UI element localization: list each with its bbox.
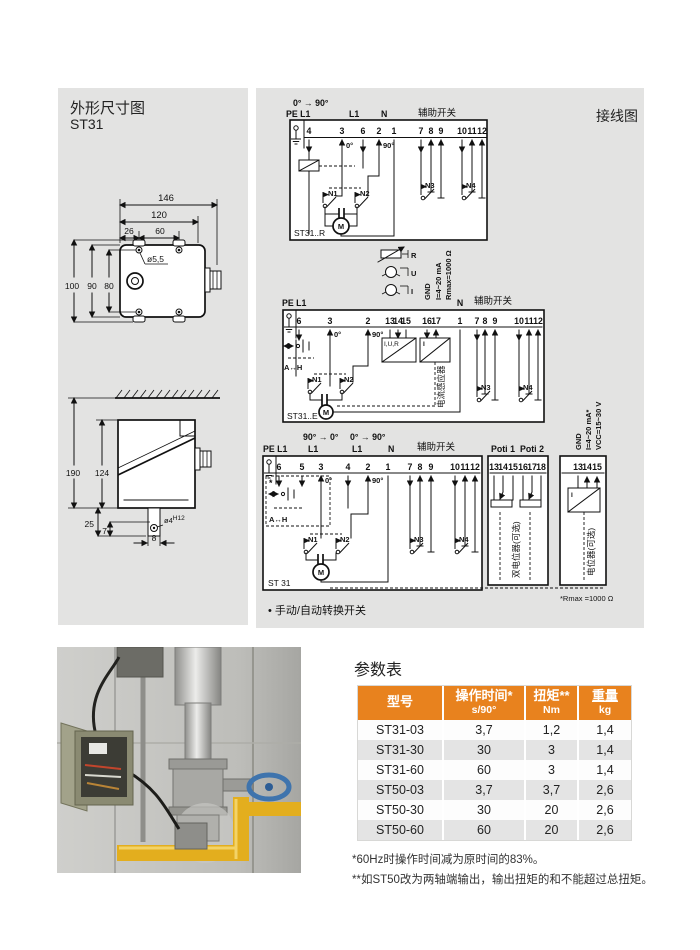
terminal-number: 10 bbox=[457, 126, 467, 136]
dim-shaft-hole: ø4H12 bbox=[164, 515, 185, 525]
terminal-number: 2 bbox=[366, 316, 371, 326]
angle-left-label: 90° → 0° bbox=[303, 432, 339, 442]
footnote-1: *60Hz时操作时间减为原时间的83%。 bbox=[352, 851, 544, 867]
cell-torque: 3 bbox=[524, 760, 577, 780]
dim-190: 190 bbox=[66, 468, 80, 478]
cell-model: ST50-60 bbox=[358, 820, 442, 840]
terminal-number: 1 bbox=[458, 316, 463, 326]
diagram-label: ST 31 bbox=[268, 578, 291, 588]
terminal-number: 18 bbox=[536, 462, 546, 472]
pe-l1-label: PE L1 bbox=[286, 109, 311, 119]
rmax-note: *Rmax =1000 Ω bbox=[560, 594, 614, 603]
table-row: ST50-033,73,72,6 bbox=[358, 780, 631, 800]
heat-shield bbox=[175, 647, 221, 705]
terminal-number: 9 bbox=[429, 462, 434, 472]
l1-label: L1 bbox=[352, 444, 362, 454]
manual-auto-label: A↔H bbox=[284, 363, 302, 372]
deg0-label: 0° bbox=[346, 141, 353, 150]
n-label: N bbox=[381, 109, 387, 119]
dual-poti-label: 双电位器(可选) bbox=[511, 521, 521, 578]
current-range-label: I=4~20 mA bbox=[434, 262, 443, 300]
cell-weight: 2,6 bbox=[577, 780, 631, 800]
diagram-label: ST31..R bbox=[294, 228, 325, 238]
terminal-number: 6 bbox=[277, 462, 282, 472]
ceiling-hatch bbox=[116, 390, 218, 398]
regulator bbox=[175, 823, 207, 849]
dim-80: 80 bbox=[104, 281, 114, 291]
cell-model: ST50-03 bbox=[358, 780, 442, 800]
terminal-number: 8 bbox=[418, 462, 423, 472]
r-option-label: R bbox=[411, 251, 417, 260]
poti-option-label: 电位器(可选) bbox=[586, 528, 596, 576]
motor-label: M bbox=[318, 568, 324, 577]
terminal-number: 2 bbox=[366, 462, 371, 472]
terminal-number: 17 bbox=[431, 316, 441, 326]
terminal-number: 7 bbox=[408, 462, 413, 472]
cell-weight: 1,4 bbox=[577, 760, 631, 780]
current-range-label: I=4~20 mA* bbox=[584, 409, 593, 450]
manual-auto-label: A↔H bbox=[269, 515, 287, 524]
terminal-number: 15 bbox=[508, 462, 518, 472]
i-option-label: I bbox=[411, 287, 413, 296]
deg90-label: 90° bbox=[383, 141, 394, 150]
current-output-box bbox=[560, 456, 606, 585]
angle-label: 0° → 90° bbox=[293, 98, 329, 108]
n1-label: N1 bbox=[308, 535, 318, 544]
col-model: 型号 bbox=[358, 686, 442, 720]
l1-label: L1 bbox=[308, 444, 318, 454]
poti2-label: Poti 2 bbox=[520, 444, 544, 454]
n3-label: N3 bbox=[425, 181, 435, 190]
dim-60: 60 bbox=[155, 226, 165, 236]
cell-time: 30 bbox=[442, 800, 524, 820]
terminal-number: 8 bbox=[483, 316, 488, 326]
terminal-number: 10 bbox=[450, 462, 460, 472]
table-row: ST50-3030202,6 bbox=[358, 800, 631, 820]
motor-label: M bbox=[338, 222, 344, 231]
dim-25: 25 bbox=[85, 519, 95, 529]
table-title: 参数表 bbox=[354, 656, 402, 680]
vertical-pipe bbox=[185, 703, 211, 761]
terminal-number: 3 bbox=[319, 462, 324, 472]
dim-8: 8 bbox=[152, 533, 157, 543]
gnd-label: GND bbox=[423, 283, 432, 300]
terminal-number: 3 bbox=[328, 316, 333, 326]
n1-label: N1 bbox=[328, 189, 338, 198]
terminal-number: 1 bbox=[392, 126, 397, 136]
aux-switch-label: 辅助开关 bbox=[417, 441, 456, 453]
terminal-number: 9 bbox=[493, 316, 498, 326]
n4-label: N4 bbox=[459, 535, 469, 544]
terminal-number: 7 bbox=[475, 316, 480, 326]
datasheet-page: 外形尺寸图 ST31 接线图 146 120 26 60 bbox=[0, 0, 700, 950]
cell-torque: 3,7 bbox=[524, 780, 577, 800]
n-label: N bbox=[457, 298, 463, 308]
dimension-drawing-side: 190 124 ø4H12 25 7 8 bbox=[60, 383, 248, 563]
terminal-number: 10 bbox=[514, 316, 524, 326]
terminal-number: 11 bbox=[460, 462, 469, 472]
installation-photo bbox=[57, 647, 301, 873]
table-row: ST31-606031,4 bbox=[358, 760, 631, 780]
current-converter-label: I bbox=[423, 341, 425, 348]
terminal-number: 6 bbox=[361, 126, 366, 136]
terminal-number: 5 bbox=[300, 462, 305, 472]
n2-label: N2 bbox=[344, 375, 354, 384]
dimension-section-title: 外形尺寸图 bbox=[70, 97, 145, 118]
cell-torque: 1,2 bbox=[524, 720, 577, 740]
terminal-number: 12 bbox=[533, 316, 543, 326]
dim-26: 26 bbox=[124, 226, 134, 236]
cell-model: ST50-30 bbox=[358, 800, 442, 820]
current-source-icon bbox=[386, 285, 397, 296]
gnd-label: GND bbox=[574, 433, 583, 450]
cell-time: 30 bbox=[442, 740, 524, 760]
n2-label: N2 bbox=[340, 535, 350, 544]
wiring-diagram-st31r: 0° → 90° PE L1 L1 N 辅助开关 4 3 6 2 1 7 8 9… bbox=[283, 96, 495, 246]
terminal-number: 12 bbox=[470, 462, 480, 472]
wiring-diagram-st31: GND I=4~20 mA* VCC=15~30 V 90° → 0° 0° →… bbox=[260, 388, 622, 630]
terminal-number: 14 bbox=[498, 462, 508, 472]
terminal-number: 2 bbox=[377, 126, 382, 136]
dim-90: 90 bbox=[87, 281, 97, 291]
cell-weight: 1,4 bbox=[577, 720, 631, 740]
cell-time: 3,7 bbox=[442, 720, 524, 740]
manual-auto-note: • 手动/自动转换开关 bbox=[268, 603, 366, 617]
cell-time: 3,7 bbox=[442, 780, 524, 800]
cell-time: 60 bbox=[442, 820, 524, 840]
cell-weight: 1,4 bbox=[577, 740, 631, 760]
dim-hole: ø5,5 bbox=[147, 254, 164, 264]
pe-l1-label: PE L1 bbox=[282, 298, 307, 308]
poti1-label: Poti 1 bbox=[491, 444, 515, 454]
terminal-number: 12 bbox=[477, 126, 487, 136]
cell-model: ST31-30 bbox=[358, 740, 442, 760]
l1-label: L1 bbox=[349, 109, 359, 119]
terminal-number: 1 bbox=[386, 462, 391, 472]
angle-right-label: 0° → 90° bbox=[350, 432, 386, 442]
col-weight: 重量kg bbox=[577, 686, 631, 720]
rmax-label: Rmax=1000 Ω bbox=[444, 250, 453, 300]
wiring-section-title: 接线图 bbox=[596, 106, 638, 126]
voltage-source-icon bbox=[386, 267, 397, 278]
aux-switch-label: 辅助开关 bbox=[418, 107, 457, 119]
terminal-number: 7 bbox=[419, 126, 424, 136]
cell-torque: 3 bbox=[524, 740, 577, 760]
parameter-table: 型号 操作时间*s/90° 扭矩**Nm 重量kg ST31-033,71,21… bbox=[358, 686, 631, 840]
u-option-label: U bbox=[411, 269, 416, 278]
terminal-number: 15 bbox=[592, 462, 602, 472]
valve-body bbox=[173, 769, 223, 807]
cell-model: ST31-60 bbox=[358, 760, 442, 780]
dim-146: 146 bbox=[158, 193, 174, 204]
cell-weight: 2,6 bbox=[577, 800, 631, 820]
potentiometer-icon bbox=[520, 500, 541, 507]
table-row: ST31-033,71,21,4 bbox=[358, 720, 631, 740]
terminal-number: 8 bbox=[429, 126, 434, 136]
dim-120: 120 bbox=[151, 210, 167, 221]
dim-124: 124 bbox=[95, 468, 109, 478]
terminal-number: 9 bbox=[439, 126, 444, 136]
n3-label: N3 bbox=[414, 535, 424, 544]
aux-switch-label: 辅助开关 bbox=[474, 295, 513, 307]
deg90-label: 90° bbox=[372, 476, 383, 485]
terminal-number: 4 bbox=[346, 462, 351, 472]
cell-torque: 20 bbox=[524, 820, 577, 840]
terminal-number: 15 bbox=[401, 316, 411, 326]
cell-time: 60 bbox=[442, 760, 524, 780]
iur-label: I,U,R bbox=[384, 341, 399, 348]
current-converter-label: I bbox=[571, 492, 573, 499]
asterisk: * bbox=[269, 478, 273, 488]
flange bbox=[169, 759, 227, 769]
table-header-row: 型号 操作时间*s/90° 扭矩**Nm 重量kg bbox=[358, 686, 631, 720]
dim-7: 7 bbox=[102, 526, 107, 536]
junction-box bbox=[117, 647, 163, 677]
terminal-number: 11 bbox=[467, 126, 476, 136]
table-row: ST50-6060202,6 bbox=[358, 820, 631, 840]
terminal-number: 3 bbox=[340, 126, 345, 136]
terminal-number: 4 bbox=[307, 126, 312, 136]
n4-label: N4 bbox=[466, 181, 476, 190]
cable-gland bbox=[205, 268, 210, 292]
vcc-label: VCC=15~30 V bbox=[594, 402, 603, 450]
col-torque: 扭矩**Nm bbox=[524, 686, 577, 720]
terminal-number: 6 bbox=[297, 316, 302, 326]
cell-model: ST31-03 bbox=[358, 720, 442, 740]
pe-l1-label: PE L1 bbox=[263, 444, 288, 454]
table-row: ST31-303031,4 bbox=[358, 740, 631, 760]
deg0-label: 0° bbox=[325, 476, 332, 485]
dimension-section-model: ST31 bbox=[70, 116, 103, 132]
terminal-number: 14 bbox=[582, 462, 592, 472]
cable-gland-side bbox=[195, 448, 200, 470]
col-operating-time: 操作时间*s/90° bbox=[442, 686, 524, 720]
deg0-label: 0° bbox=[334, 330, 341, 339]
n-label: N bbox=[388, 444, 394, 454]
dimension-drawing-top: 146 120 26 60 ø5,5 bbox=[60, 165, 248, 337]
footnote-2: **如ST50改为两轴端输出，输出扭矩的和不能超过总扭矩。 bbox=[352, 871, 653, 887]
cell-weight: 2,6 bbox=[577, 820, 631, 840]
dim-100: 100 bbox=[65, 281, 79, 291]
cell-torque: 20 bbox=[524, 800, 577, 820]
n1-label: N1 bbox=[312, 375, 322, 384]
potentiometer-icon bbox=[491, 500, 512, 507]
